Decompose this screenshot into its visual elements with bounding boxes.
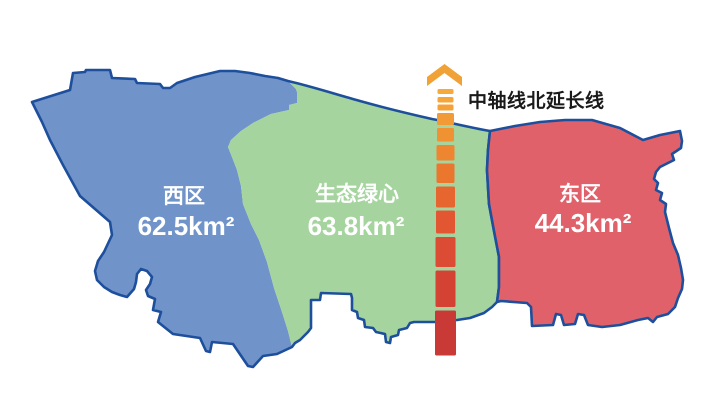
axis-dash <box>437 113 454 125</box>
region-center-labels: 生态绿心 63.8km² <box>308 182 405 241</box>
region-east-area: 44.3km² <box>535 208 632 238</box>
axis-dash <box>438 97 454 103</box>
region-east-name: 东区 <box>559 182 601 206</box>
axis-dash <box>436 271 456 308</box>
axis-dash <box>435 311 456 356</box>
region-west-area: 62.5km² <box>138 211 235 241</box>
region-center-area: 63.8km² <box>308 211 405 241</box>
region-center-name: 生态绿心 <box>315 182 399 206</box>
axis-dash <box>438 105 454 111</box>
axis-dash <box>437 145 455 161</box>
axis-dash <box>436 187 455 208</box>
axis-dash <box>436 237 456 267</box>
axis-dash <box>437 164 455 184</box>
axis-dash <box>436 211 455 234</box>
map-canvas: 中轴线北延长线 西区 62.5km² 生态绿心 63.8km² 东区 44.3k… <box>0 0 718 407</box>
axis-label: 中轴线北延长线 <box>468 89 605 112</box>
axis-dash <box>438 89 454 94</box>
axis-dash <box>437 128 454 142</box>
arrow-up-icon <box>427 64 462 86</box>
region-west-name: 西区 <box>163 185 205 208</box>
